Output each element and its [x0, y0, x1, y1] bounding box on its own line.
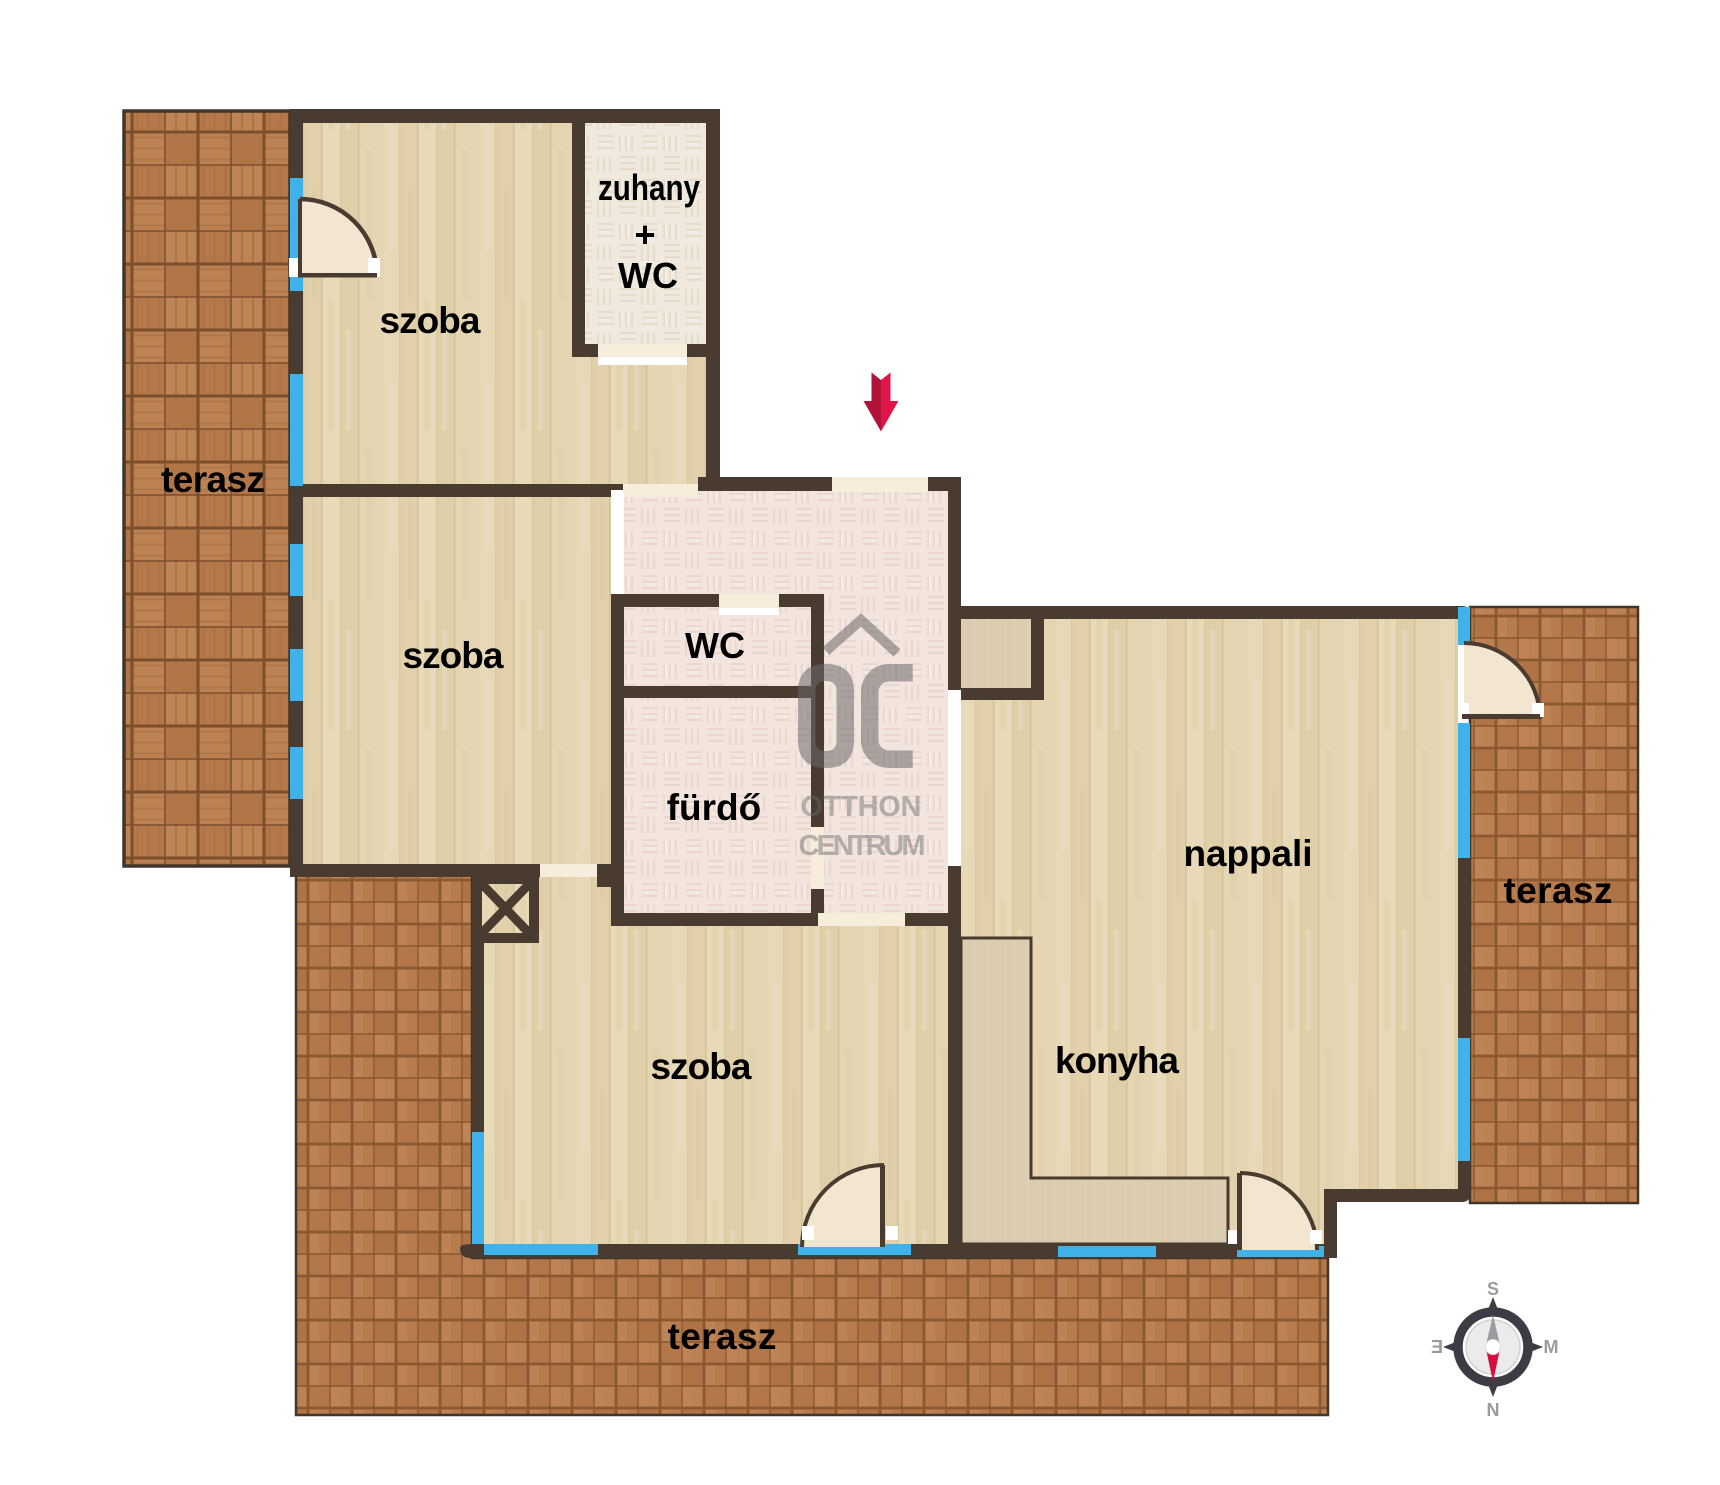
svg-text:szoba: szoba	[380, 300, 481, 341]
svg-text:S: S	[1487, 1279, 1499, 1299]
svg-text:E: E	[1431, 1337, 1443, 1357]
svg-text:konyha: konyha	[1055, 1040, 1179, 1081]
svg-text:N: N	[1487, 1400, 1500, 1420]
svg-text:terasz: terasz	[668, 1316, 777, 1357]
svg-text:terasz: terasz	[1504, 870, 1613, 911]
svg-text:zuhany: zuhany	[598, 167, 700, 208]
svg-text:szoba: szoba	[651, 1046, 752, 1087]
svg-text:CENTRUM: CENTRUM	[799, 830, 926, 862]
svg-text:+: +	[634, 214, 655, 255]
svg-text:nappali: nappali	[1184, 833, 1313, 874]
svg-text:M: M	[1544, 1337, 1559, 1357]
svg-text:fürdő: fürdő	[667, 787, 762, 828]
svg-text:terasz: terasz	[161, 459, 265, 500]
svg-text:WC: WC	[618, 255, 678, 296]
svg-text:WC: WC	[685, 625, 745, 666]
svg-text:szoba: szoba	[403, 635, 504, 676]
svg-text:OTTHON: OTTHON	[801, 791, 922, 823]
